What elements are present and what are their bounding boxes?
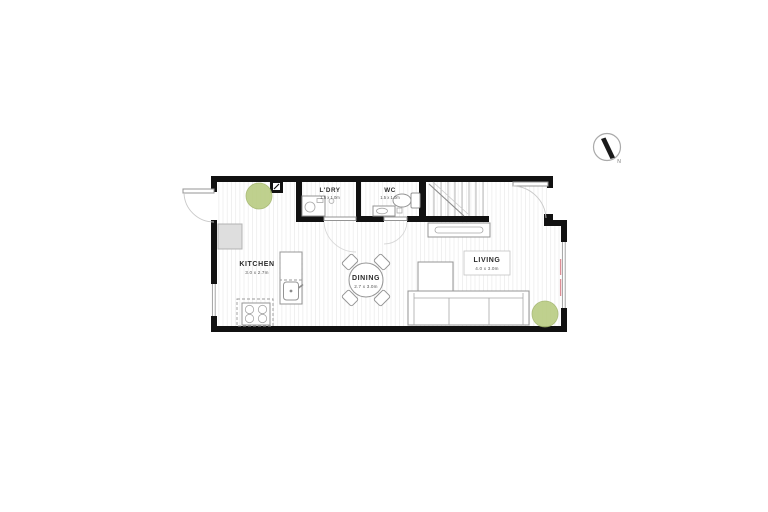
wall-right-upper	[561, 226, 567, 242]
floor-plan-canvas: KITCHEN 3.0 x 2.7m DINING 2.7 x 3.0m LIV…	[0, 0, 768, 512]
door-leaf-right	[513, 182, 548, 186]
wall-laundry-wc	[356, 176, 361, 222]
floor-plan-page: KITCHEN 3.0 x 2.7m DINING 2.7 x 3.0m LIV…	[0, 0, 768, 512]
meter-box-icon	[270, 180, 283, 193]
wall-under-wc	[356, 216, 384, 222]
plant-icon	[532, 301, 558, 327]
window-left	[210, 284, 218, 316]
dining-dims: 2.7 x 3.0m	[354, 284, 377, 289]
living-name: LIVING	[474, 257, 501, 264]
wall-right-jog	[544, 220, 567, 226]
label-laundry: L'DRY 1.5 x 1.0m	[320, 187, 341, 200]
wc-name: WC	[384, 187, 396, 194]
wc-dims: 1.5 x 1.0m	[380, 195, 400, 200]
door-swing-left	[184, 193, 214, 222]
wall-nook-laundry	[296, 176, 302, 222]
door-leaf-left	[183, 189, 214, 193]
wall-top	[211, 176, 553, 182]
compass-north-label: N	[617, 159, 621, 165]
wall-under-laundry	[296, 216, 324, 222]
fridge	[218, 224, 242, 249]
kitchen-island	[280, 252, 303, 304]
laundry-dims: 1.5 x 1.0m	[320, 195, 340, 200]
kitchen-dims: 3.0 x 2.7m	[245, 270, 268, 275]
wall-left-low	[211, 316, 217, 326]
dining-name: DINING	[352, 275, 380, 282]
sink-drain	[290, 290, 293, 293]
wall-under-stairs	[407, 216, 489, 222]
entry-door-left	[183, 189, 214, 222]
label-living: LIVING 4.0 x 3.0m	[464, 251, 510, 275]
plant-icon	[246, 183, 272, 209]
wall-right-lower	[561, 308, 567, 326]
laundry-name: L'DRY	[320, 187, 341, 194]
sideboard	[428, 223, 490, 237]
kitchen-name: KITCHEN	[239, 261, 274, 268]
wall-bottom	[211, 326, 567, 332]
sofa-base	[408, 291, 529, 325]
living-dims: 4.0 x 3.0m	[475, 266, 498, 271]
wall-left-mid	[211, 220, 217, 284]
stove-cooktop	[237, 299, 273, 326]
compass-icon: N	[594, 134, 622, 166]
chaise	[418, 262, 453, 293]
window-right	[560, 242, 568, 308]
